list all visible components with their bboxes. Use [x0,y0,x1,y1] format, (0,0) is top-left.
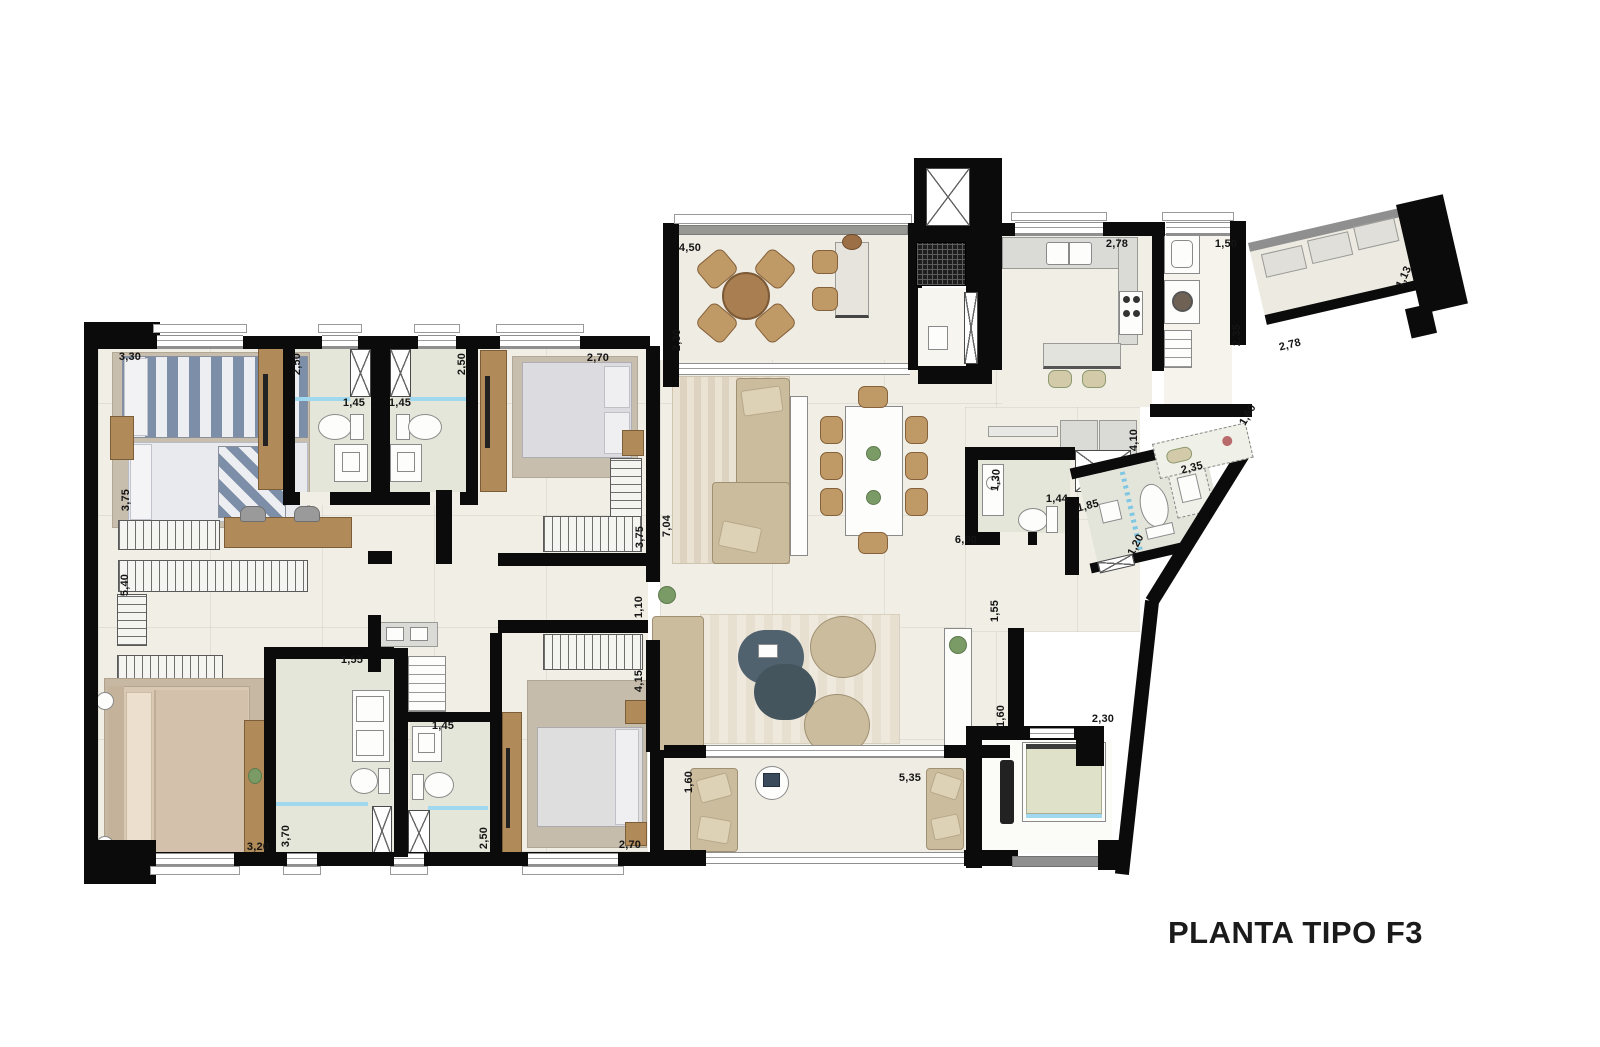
dimension-label: 2,35 [1180,459,1204,476]
dimension-label: 7,04 [661,515,673,537]
dimension-label: 1,60 [1237,402,1259,427]
dimension-label: 1,44 [1046,493,1068,505]
dimension-label: 1,13 [1394,264,1414,289]
dimension-label: 1,45 [389,397,411,409]
dimension-label: 2,50 [478,827,490,849]
dimension-label: 2,50 [456,353,468,375]
dimension-label: 4,10 [1128,429,1140,451]
dimension-label: 2,30 [1092,713,1114,725]
dimension-label: 6,00 [955,534,977,546]
dimension-label: 1,60 [683,771,695,793]
dimension-label: 3,20 [247,841,269,853]
dimension-label: 4,50 [679,242,701,254]
dimension-label: 1,60 [995,705,1007,727]
dimension-label: 2,78 [1106,238,1128,250]
dimension-label: 5,40 [119,574,131,596]
dimension-label: 3,75 [634,526,646,548]
dimension-label: 3,70 [280,825,292,847]
dimension-label: 1,85 [1076,497,1100,514]
floor-plan: 3,303,752,501,451,452,502,705,404,502,30… [0,0,1600,1047]
dimension-label: 2,35 [1231,324,1243,346]
dimension-label: 1,20 [1125,532,1146,557]
dimension-label: 1,55 [989,600,1001,622]
dimension-label: 4,15 [633,670,645,692]
dimension-label: 2,70 [619,839,641,851]
dimension-label: 2,78 [1278,336,1302,353]
dimension-label: 1,50 [1215,238,1237,250]
dimension-label: 5,35 [899,772,921,784]
dimension-label: 2,30 [671,329,683,351]
dimension-label: 3,30 [119,351,141,363]
dimension-label: 3,75 [120,489,132,511]
dimension-label: 1,10 [633,596,645,618]
dimension-labels: 3,303,752,501,451,452,502,705,404,502,30… [0,0,1600,1047]
page-title: PLANTA TIPO F3 [1168,915,1423,951]
dimension-label: 2,70 [587,352,609,364]
dimension-label: 1,55 [341,654,363,666]
dimension-label: 2,50 [291,353,303,375]
dimension-label: 1,45 [432,720,454,732]
dimension-label: 1,30 [989,468,1003,491]
dimension-label: 1,45 [343,397,365,409]
